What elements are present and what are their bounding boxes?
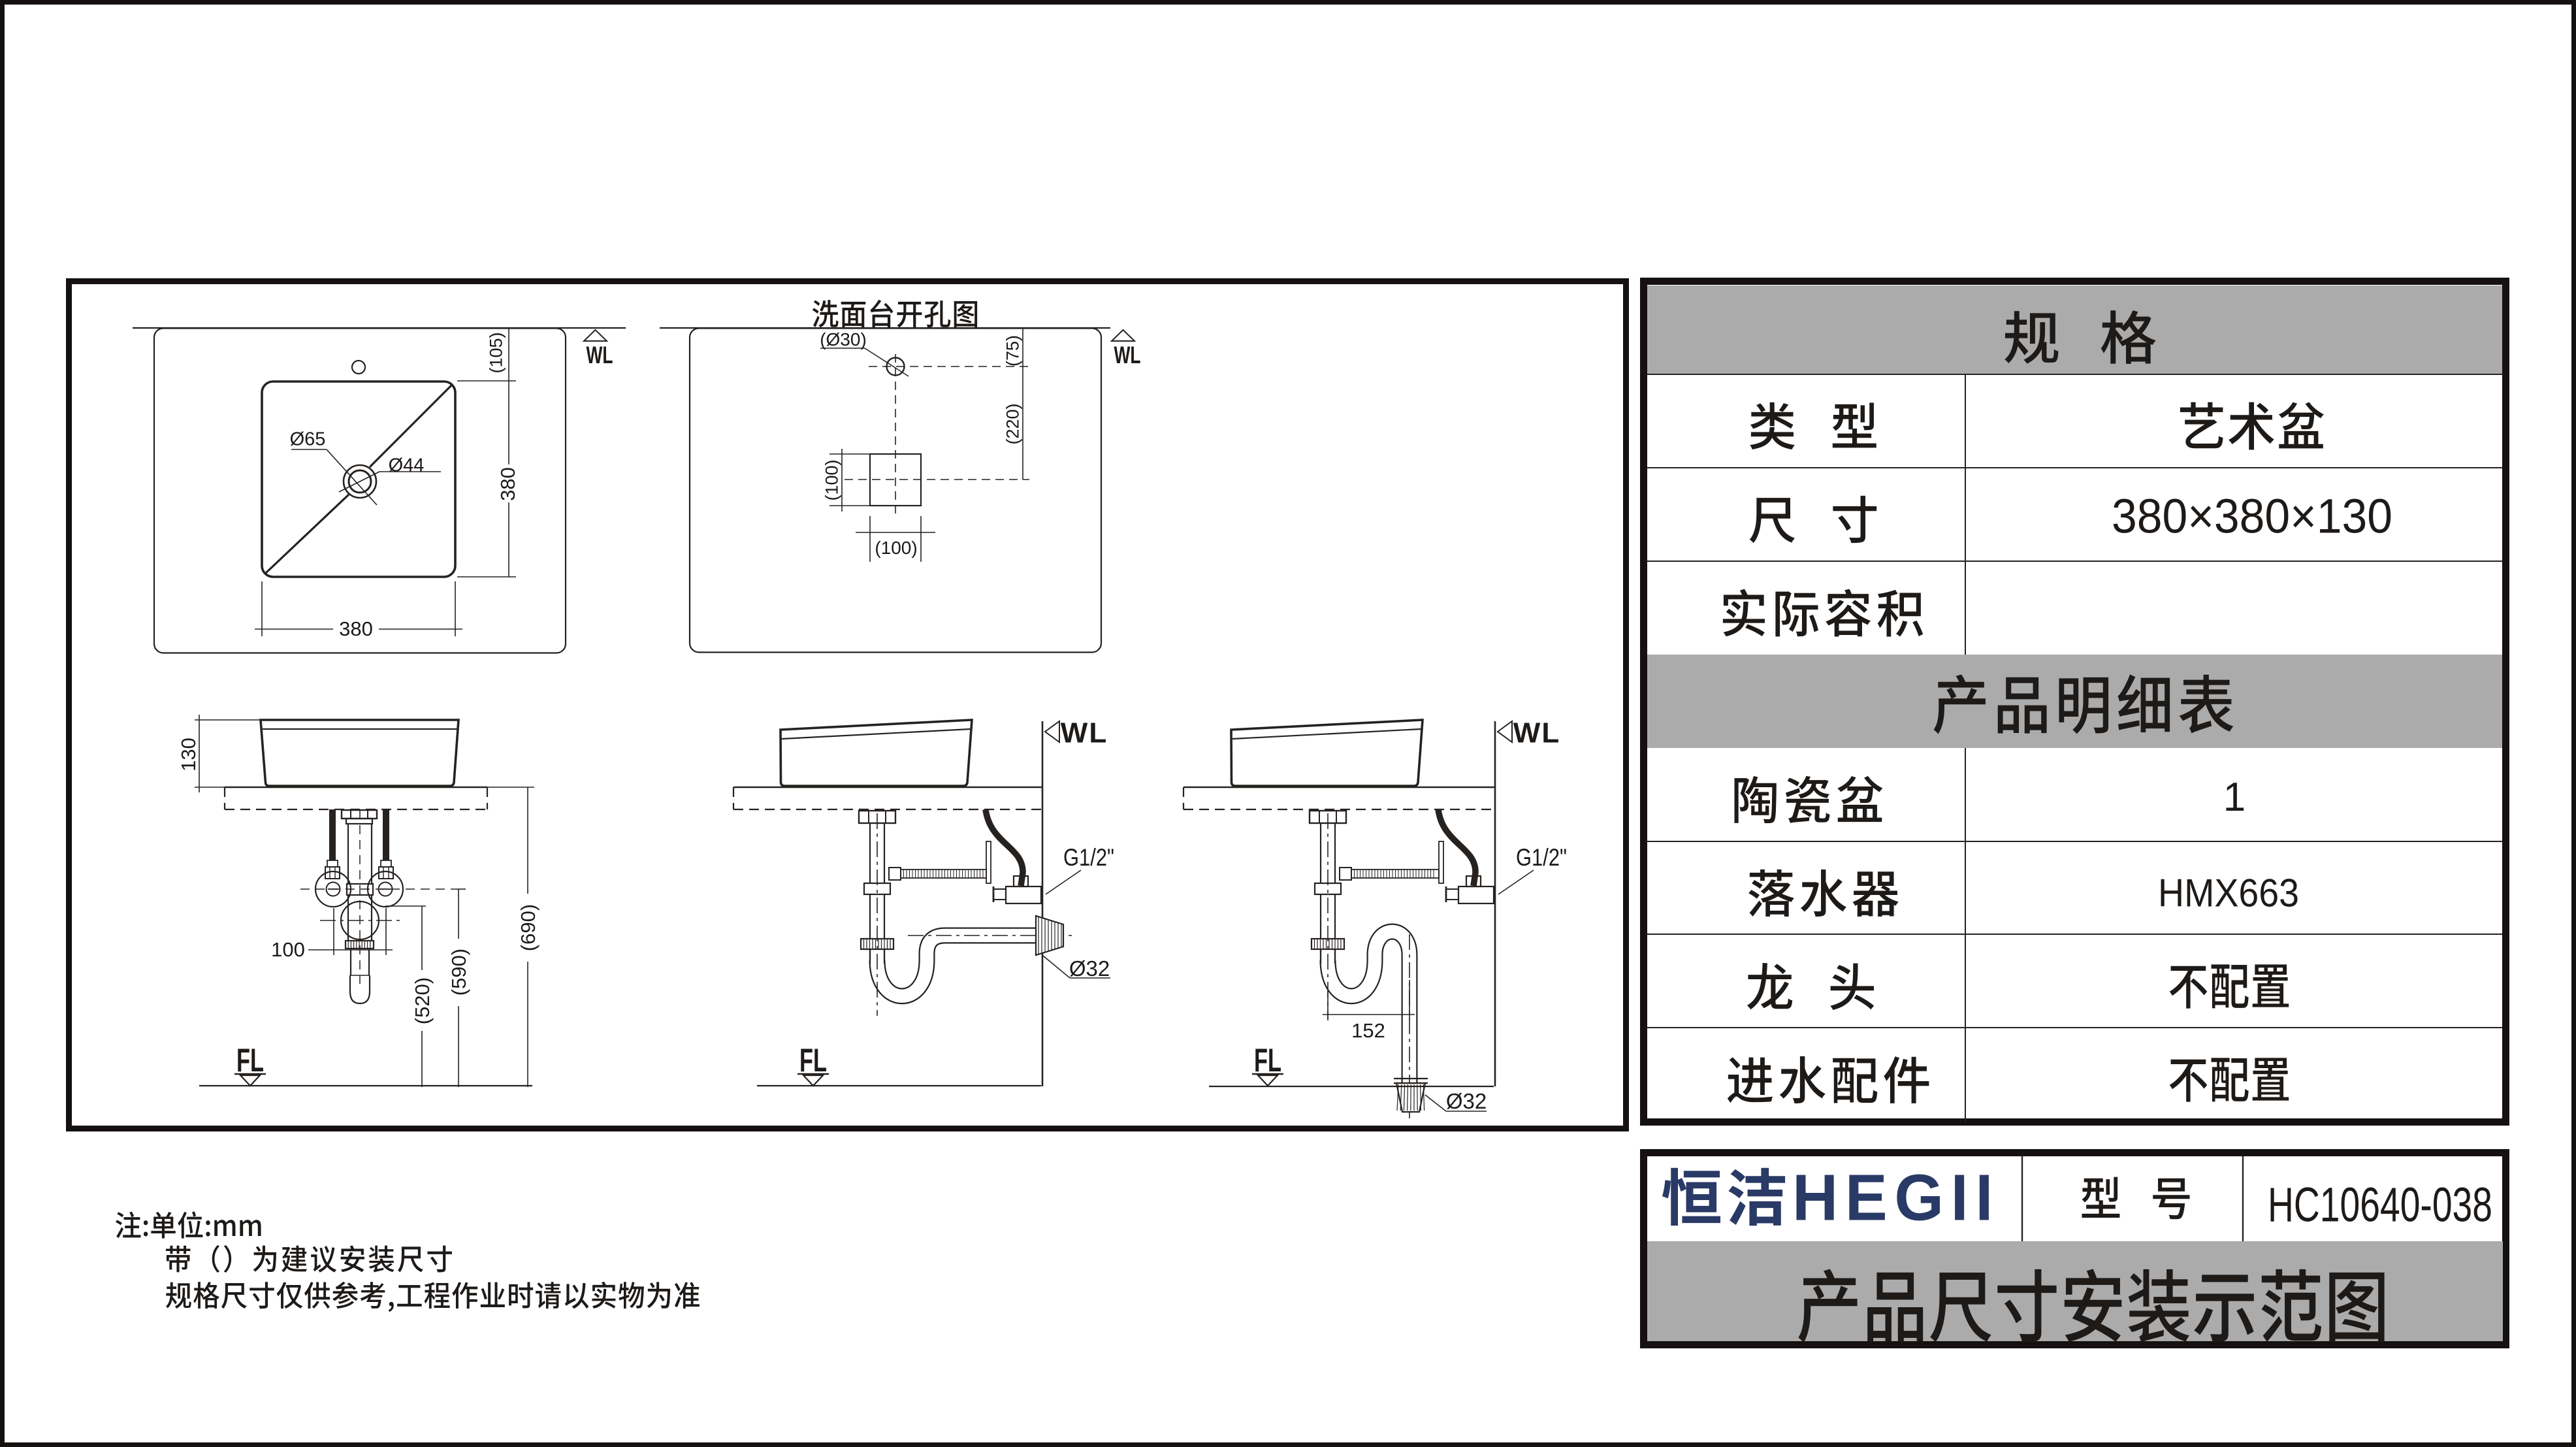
svg-text:380×380×130: 380×380×130 bbox=[2112, 489, 2392, 543]
svg-text:(105): (105) bbox=[487, 332, 506, 373]
svg-text:WL: WL bbox=[1513, 717, 1560, 749]
svg-text:380: 380 bbox=[339, 617, 373, 640]
svg-text:Ø32: Ø32 bbox=[1069, 956, 1110, 981]
svg-text:Ø65: Ø65 bbox=[290, 429, 326, 449]
svg-text:(100): (100) bbox=[822, 459, 842, 500]
svg-text:(220): (220) bbox=[1003, 403, 1023, 444]
svg-text:(100): (100) bbox=[875, 538, 917, 558]
svg-text:FL: FL bbox=[1254, 1042, 1281, 1079]
svg-text:FL: FL bbox=[799, 1042, 827, 1079]
svg-text:(690): (690) bbox=[517, 904, 539, 951]
svg-text:Ø32: Ø32 bbox=[1446, 1089, 1487, 1113]
svg-text:WL: WL bbox=[587, 342, 613, 368]
svg-text:(75): (75) bbox=[1003, 335, 1023, 366]
svg-text:Ø44: Ø44 bbox=[389, 455, 425, 476]
svg-text:(520): (520) bbox=[411, 977, 434, 1024]
svg-text:100: 100 bbox=[271, 938, 305, 961]
svg-text:(Ø30): (Ø30) bbox=[820, 329, 867, 350]
svg-text:HEGII: HEGII bbox=[1792, 1162, 2000, 1235]
svg-text:HMX663: HMX663 bbox=[2158, 871, 2299, 915]
svg-text:G1/2": G1/2" bbox=[1516, 844, 1567, 871]
svg-text:HC10640-038: HC10640-038 bbox=[2268, 1177, 2492, 1231]
svg-text:G1/2": G1/2" bbox=[1063, 844, 1114, 871]
svg-text:1: 1 bbox=[2223, 775, 2246, 820]
svg-text:WL: WL bbox=[1114, 342, 1141, 368]
svg-text:130: 130 bbox=[177, 738, 200, 772]
svg-text:WL: WL bbox=[1061, 717, 1108, 749]
svg-text:FL: FL bbox=[236, 1042, 264, 1079]
svg-text:152: 152 bbox=[1351, 1019, 1385, 1042]
svg-text:(590): (590) bbox=[447, 949, 470, 996]
svg-text:380: 380 bbox=[496, 467, 519, 501]
